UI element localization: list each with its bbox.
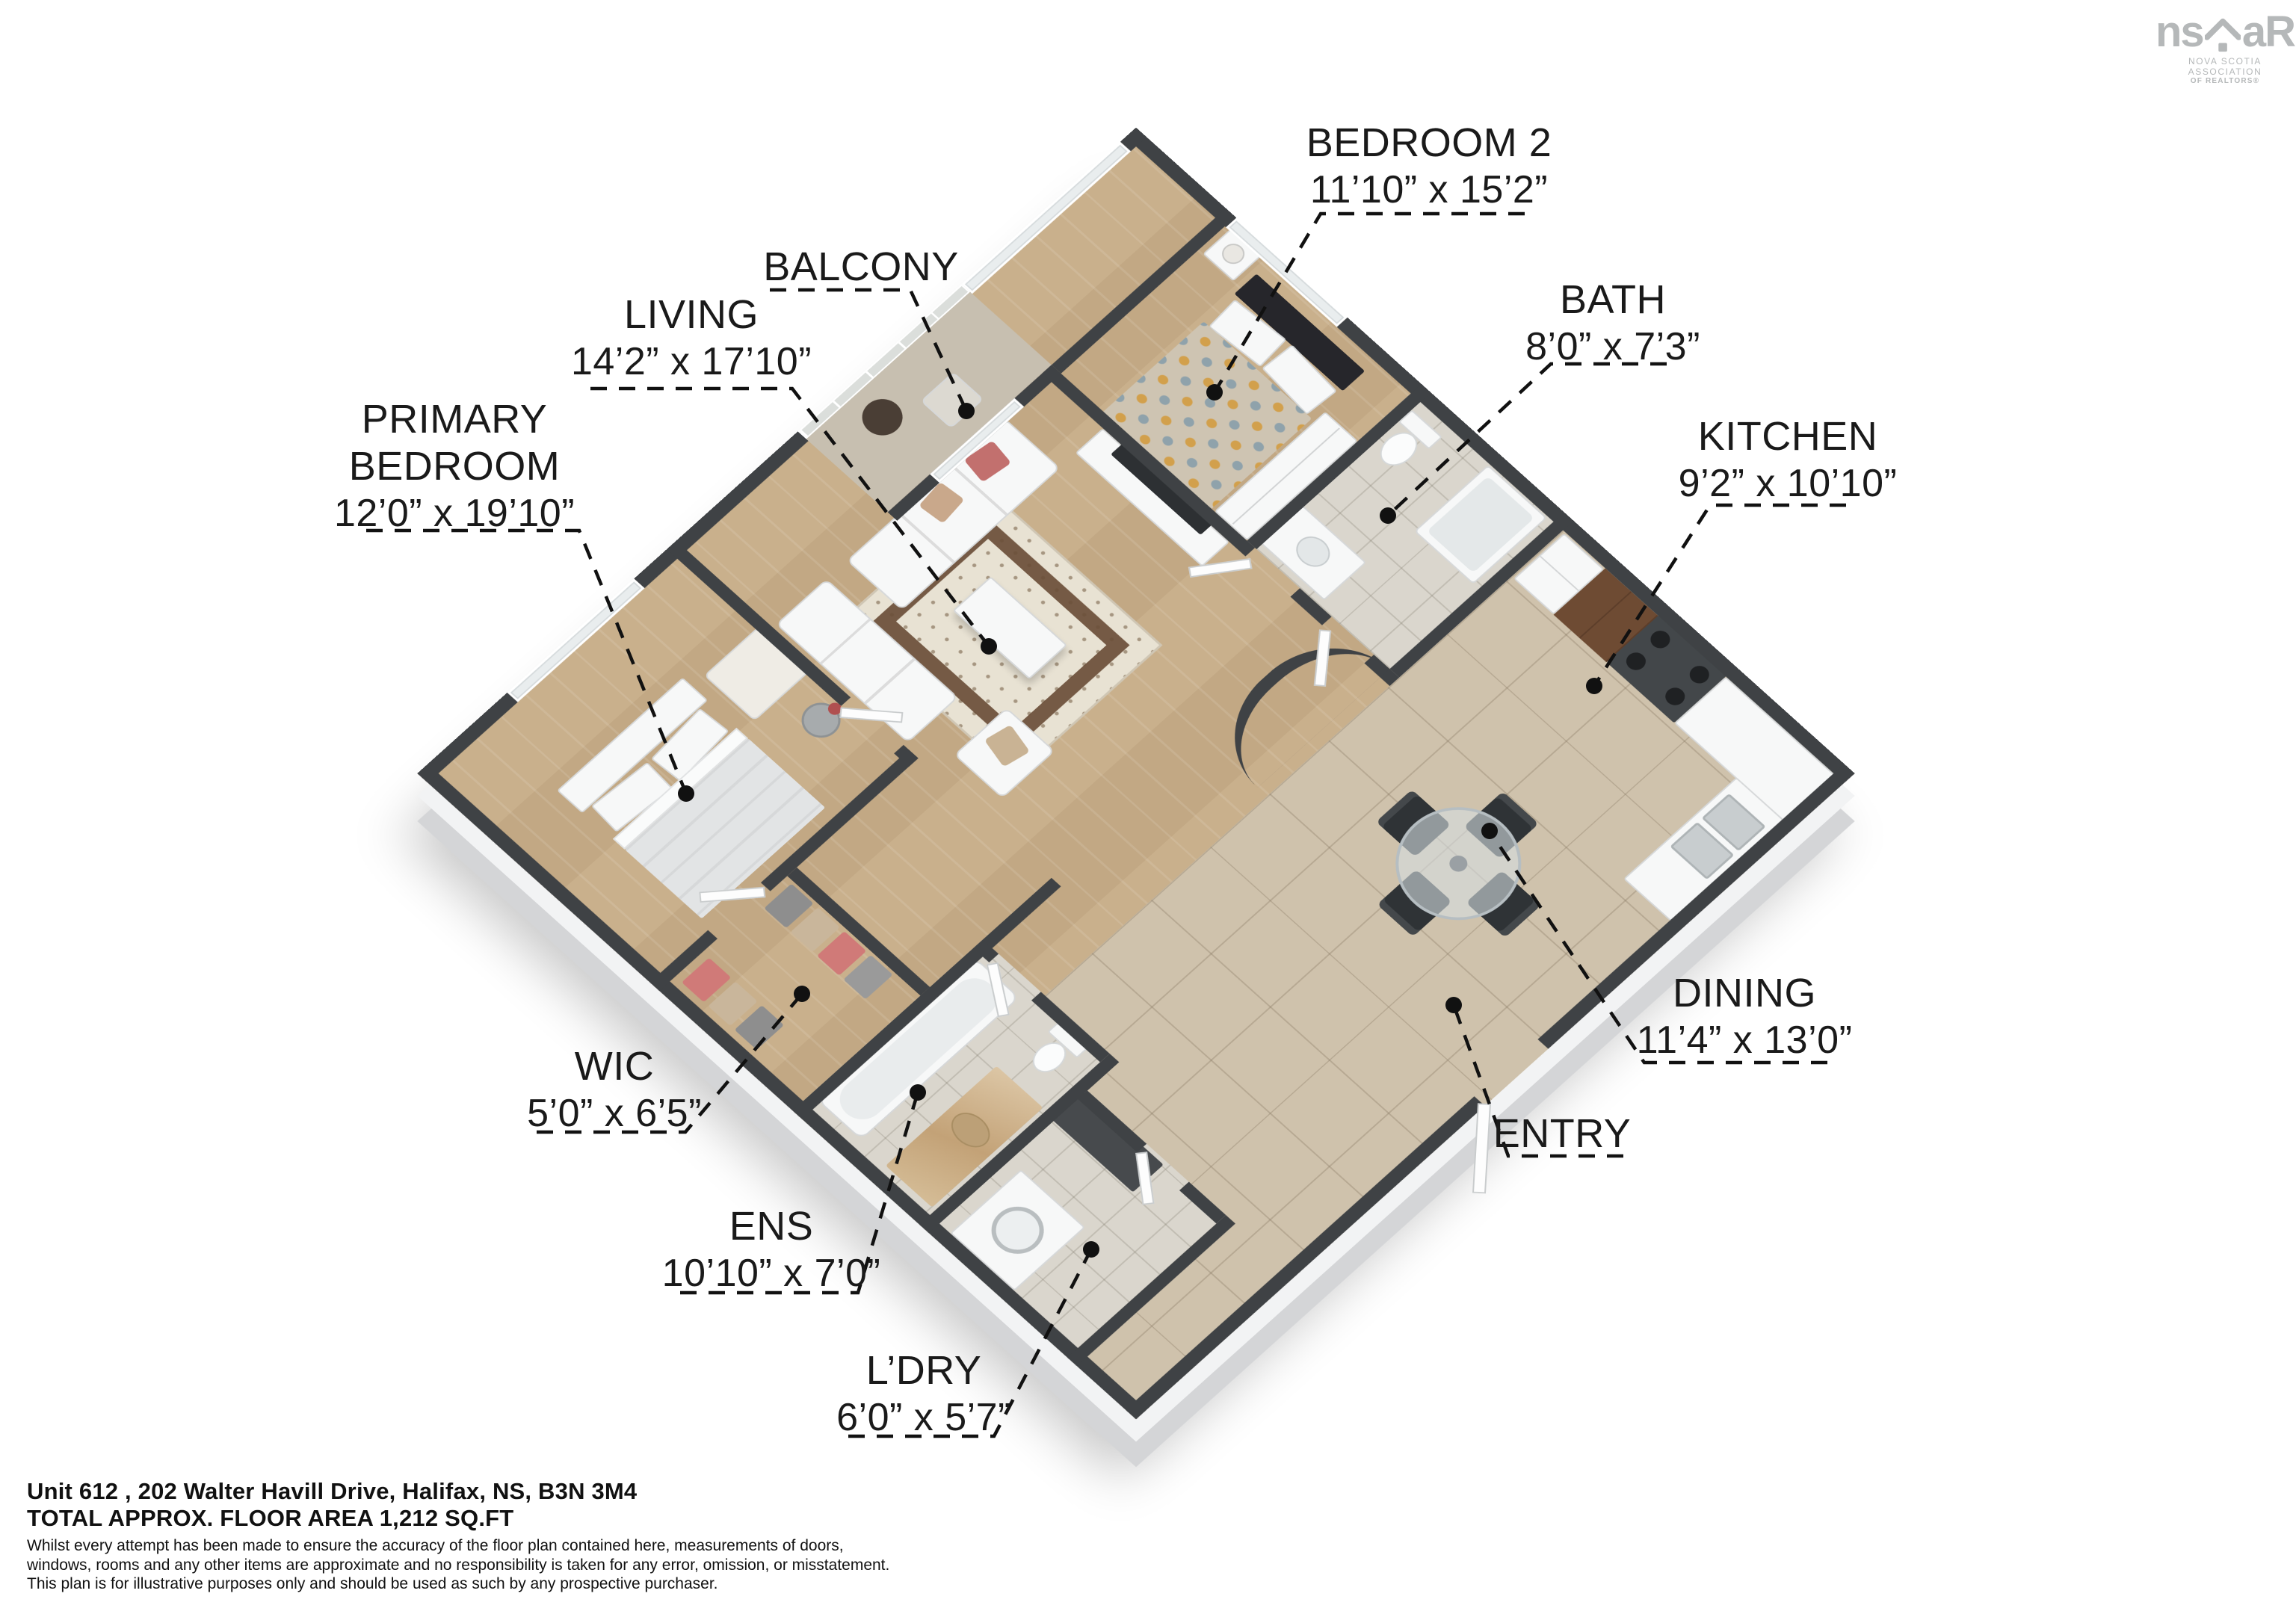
room-dims: 10’10” x 7’0” bbox=[614, 1250, 928, 1297]
nsar-logo-wordmark: ns aR bbox=[2155, 10, 2295, 54]
room-label-entry: ENTRY bbox=[1450, 1110, 1674, 1157]
room-label-wic: WIC 5’0” x 6’5” bbox=[487, 1043, 741, 1137]
room-label-balcony: BALCONY bbox=[734, 244, 988, 291]
room-name: WIC bbox=[487, 1043, 741, 1090]
room-label-kitchen: KITCHEN 9’2” x 10’10” bbox=[1631, 413, 1945, 507]
room-name: KITCHEN bbox=[1631, 413, 1945, 460]
room-label-bath: BATH 8’0” x 7’3” bbox=[1486, 276, 1740, 371]
room-name: ENTRY bbox=[1450, 1110, 1674, 1157]
leader-lines bbox=[0, 0, 2296, 1623]
floorplan-page: BEDROOM 2 11’10” x 15’2” BALCONY LIVING … bbox=[0, 0, 2296, 1623]
room-name: BATH bbox=[1486, 276, 1740, 324]
logo-tagline-2: OF REALTORS® bbox=[2155, 77, 2295, 85]
room-dims: 11’4” x 13’0” bbox=[1587, 1017, 1901, 1064]
room-name: BEDROOM 2 bbox=[1257, 120, 1601, 167]
room-dims: 12’0” x 19’10” bbox=[297, 490, 611, 537]
logo-tagline: NOVA SCOTIA ASSOCIATION bbox=[2155, 56, 2295, 77]
room-label-living: LIVING 14’2” x 17’10” bbox=[534, 291, 848, 386]
logo-text-left: ns bbox=[2155, 10, 2203, 54]
room-label-bedroom2: BEDROOM 2 11’10” x 15’2” bbox=[1257, 120, 1601, 214]
disclaimer-line: Whilst every attempt has been made to en… bbox=[27, 1536, 889, 1556]
room-name: ENS bbox=[614, 1203, 928, 1250]
room-label-ldry: L’DRY 6’0” x 5’7” bbox=[789, 1347, 1058, 1441]
room-label-dining: DINING 11’4” x 13’0” bbox=[1587, 970, 1901, 1064]
room-name: BALCONY bbox=[734, 244, 988, 291]
floor-area-line: TOTAL APPROX. FLOOR AREA 1,212 SQ.FT bbox=[27, 1505, 889, 1532]
disclaimer-line: windows, rooms and any other items are a… bbox=[27, 1556, 889, 1575]
room-name: L’DRY bbox=[789, 1347, 1058, 1394]
room-name: LIVING bbox=[534, 291, 848, 338]
room-dims: 11’10” x 15’2” bbox=[1257, 167, 1601, 214]
room-name: DINING bbox=[1587, 970, 1901, 1017]
room-label-primary-bedroom: PRIMARY BEDROOM 12’0” x 19’10” bbox=[331, 396, 578, 537]
room-dims: 9’2” x 10’10” bbox=[1631, 460, 1945, 507]
address-line: Unit 612 , 202 Walter Havill Drive, Hali… bbox=[27, 1478, 889, 1505]
footer: Unit 612 , 202 Walter Havill Drive, Hali… bbox=[27, 1478, 889, 1594]
logo-text-right: aR bbox=[2242, 10, 2295, 54]
room-label-ens: ENS 10’10” x 7’0” bbox=[614, 1203, 928, 1297]
nsar-logo: ns aR NOVA SCOTIA ASSOCIATION OF REALTOR… bbox=[2155, 10, 2295, 85]
room-dims: 8’0” x 7’3” bbox=[1486, 324, 1740, 371]
room-dims: 5’0” x 6’5” bbox=[487, 1090, 741, 1137]
room-dims: 14’2” x 17’10” bbox=[534, 338, 848, 386]
disclaimer-line: This plan is for illustrative purposes o… bbox=[27, 1574, 889, 1594]
house-roof-icon bbox=[2205, 15, 2241, 54]
room-dims: 6’0” x 5’7” bbox=[789, 1394, 1058, 1441]
room-name: PRIMARY BEDROOM bbox=[331, 396, 578, 490]
